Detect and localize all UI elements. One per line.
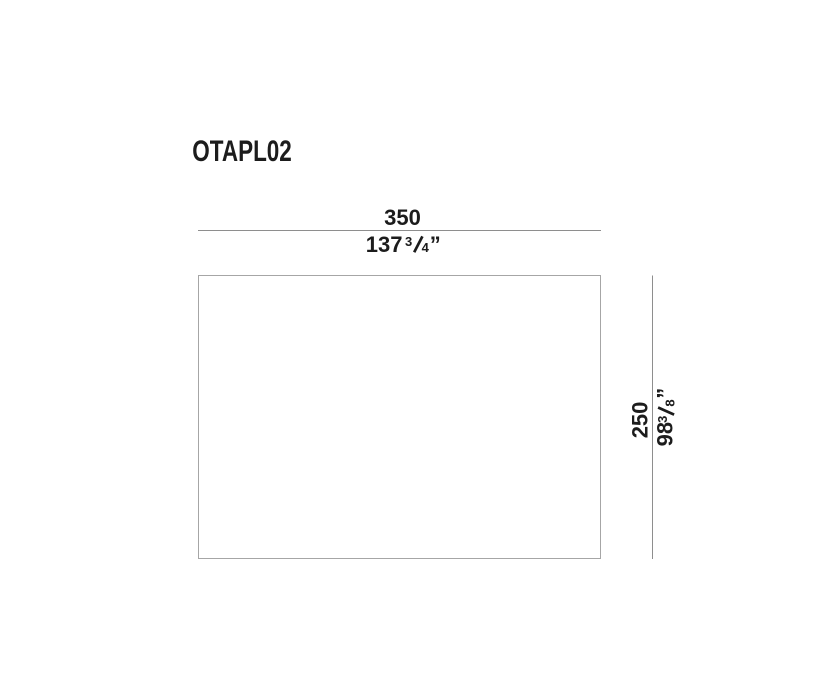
svg-text:”: ” (652, 388, 677, 399)
svg-text:137: 137 (366, 232, 403, 257)
svg-text:”: ” (430, 232, 441, 257)
svg-text:3: 3 (655, 416, 670, 423)
svg-text:OTAPL02: OTAPL02 (192, 134, 292, 168)
svg-text:8: 8 (662, 399, 677, 406)
svg-text:3: 3 (405, 234, 412, 249)
svg-text:250: 250 (628, 402, 653, 439)
svg-text:4: 4 (422, 240, 430, 255)
svg-text:98: 98 (652, 422, 677, 446)
svg-text:350: 350 (384, 205, 421, 230)
